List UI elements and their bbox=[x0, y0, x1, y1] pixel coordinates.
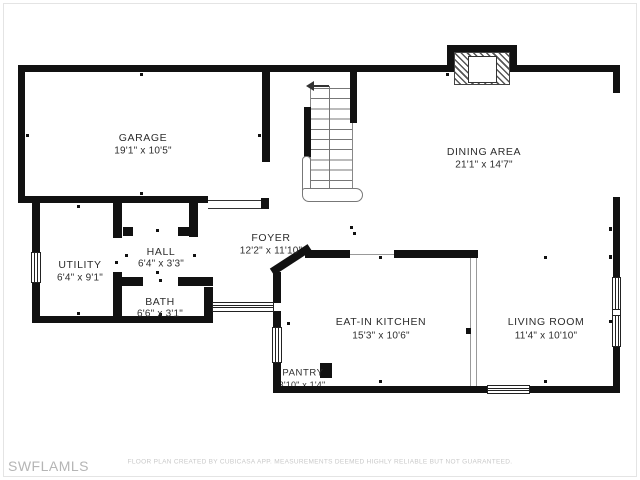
wall-left bbox=[18, 65, 25, 203]
stairs-up-arrow-icon bbox=[306, 81, 314, 91]
fireplace-firebox bbox=[468, 56, 497, 83]
wall-top-left bbox=[18, 65, 448, 72]
room-label-garage: GARAGE bbox=[119, 132, 168, 144]
wall-bottom-right bbox=[530, 386, 620, 393]
wall-kitchen-top-right bbox=[394, 250, 478, 258]
image-border bbox=[3, 3, 637, 477]
wall-tick bbox=[156, 229, 159, 232]
wall-kitchen-top-left bbox=[305, 250, 350, 258]
garage-opening-symbol bbox=[208, 200, 261, 209]
room-label-bath: BATH bbox=[145, 296, 175, 308]
wall-top-right bbox=[516, 65, 620, 72]
wall-pantry-left bbox=[273, 363, 281, 393]
wall-tick bbox=[115, 261, 118, 264]
room-label-utility: UTILITY bbox=[58, 259, 101, 271]
wall-tick bbox=[609, 255, 612, 259]
watermark: SWFLAMLS bbox=[8, 458, 89, 474]
fireplace-top-wall bbox=[447, 45, 517, 52]
bottom-window-symbol bbox=[487, 385, 530, 394]
wall-garage-opening-endcap bbox=[261, 198, 269, 209]
room-dims-bath: 6'6" x 3'1" bbox=[137, 309, 183, 320]
wall-tick bbox=[77, 312, 80, 315]
wall-tick bbox=[125, 254, 128, 257]
utility-window-symbol bbox=[31, 252, 41, 283]
wall-tick bbox=[206, 299, 209, 302]
wall-tick bbox=[379, 256, 382, 259]
wall-tick bbox=[77, 205, 80, 208]
wall-hall-right bbox=[189, 203, 198, 237]
wall-tick bbox=[140, 192, 143, 195]
divider-top-tick bbox=[470, 253, 477, 258]
room-label-hall: HALL bbox=[147, 246, 176, 258]
wall-tick bbox=[287, 322, 290, 325]
room-dims-utility: 6'4" x 9'1" bbox=[57, 273, 103, 284]
wall-tick bbox=[379, 380, 382, 383]
wall-tick bbox=[350, 226, 353, 229]
wall-west-upper bbox=[273, 272, 281, 303]
wall-right-upper bbox=[613, 72, 620, 93]
wall-utility-bath-bottom bbox=[32, 316, 213, 323]
wall-right-mid bbox=[613, 197, 620, 277]
room-dims-garage: 19'1" x 10'5" bbox=[114, 146, 171, 157]
wall-bath-top-left bbox=[113, 277, 143, 286]
bath-opening-symbol bbox=[212, 302, 274, 312]
wall-tick bbox=[156, 271, 159, 274]
wall-bottom-mid bbox=[281, 386, 487, 393]
wall-bath-top-right bbox=[178, 277, 213, 286]
fireplace-right-wall bbox=[510, 52, 517, 72]
floor-plan: GARAGE 19'1" x 10'5" DINING AREA 21'1" x… bbox=[0, 0, 640, 480]
divider-mid-tick bbox=[466, 328, 471, 334]
room-label-pantry: PANTRY bbox=[282, 368, 323, 379]
wall-tick bbox=[115, 299, 118, 302]
wall-tick bbox=[446, 73, 449, 76]
wall-tick bbox=[26, 134, 29, 137]
wall-tick bbox=[609, 227, 612, 231]
room-label-living-room: LIVING ROOM bbox=[508, 316, 585, 328]
room-label-dining-area: DINING AREA bbox=[447, 146, 521, 158]
living-window-symbol bbox=[612, 277, 621, 347]
wall-tick bbox=[353, 232, 356, 235]
wall-tick bbox=[544, 380, 547, 383]
staircase-rail-bottom bbox=[302, 188, 363, 202]
wall-tick bbox=[193, 254, 196, 257]
kitchen-living-divider bbox=[470, 253, 477, 386]
living-window-divider bbox=[613, 309, 620, 316]
wall-stairs-right bbox=[350, 72, 357, 123]
kitchen-window-symbol bbox=[272, 327, 282, 363]
wall-tick bbox=[258, 134, 261, 137]
stairs-up-arrow-line bbox=[314, 85, 329, 87]
room-dims-eat-in-kitchen: 15'3" x 10'6" bbox=[352, 331, 409, 342]
wall-utility-hall-upper bbox=[113, 203, 122, 238]
wall-utility-left-upper bbox=[32, 203, 40, 252]
disclaimer-text: FLOOR PLAN CREATED BY CUBICASA APP. MEAS… bbox=[128, 459, 513, 466]
wall-hall-top-left-stub bbox=[123, 227, 133, 236]
room-dims-hall: 6'4" x 3'3" bbox=[138, 259, 184, 270]
wall-garage-right bbox=[262, 72, 270, 162]
wall-garage-bottom bbox=[18, 196, 208, 203]
wall-tick bbox=[544, 256, 547, 259]
room-label-eat-in-kitchen: EAT-IN KITCHEN bbox=[336, 316, 426, 328]
room-dims-foyer: 12'2" x 11'10" bbox=[240, 246, 302, 257]
room-label-foyer: FOYER bbox=[251, 232, 290, 244]
room-dims-living-room: 11'4" x 10'10" bbox=[515, 331, 577, 342]
wall-stairs-left bbox=[304, 107, 311, 157]
staircase-treads bbox=[310, 88, 353, 190]
room-dims-dining-area: 21'1" x 14'7" bbox=[455, 160, 512, 171]
wall-tick bbox=[140, 73, 143, 76]
fireplace-left-wall bbox=[447, 52, 454, 72]
staircase-center-line bbox=[329, 86, 330, 190]
wall-tick bbox=[159, 279, 162, 282]
kitchen-doorway-line bbox=[350, 254, 394, 255]
wall-west-mid bbox=[273, 311, 281, 327]
